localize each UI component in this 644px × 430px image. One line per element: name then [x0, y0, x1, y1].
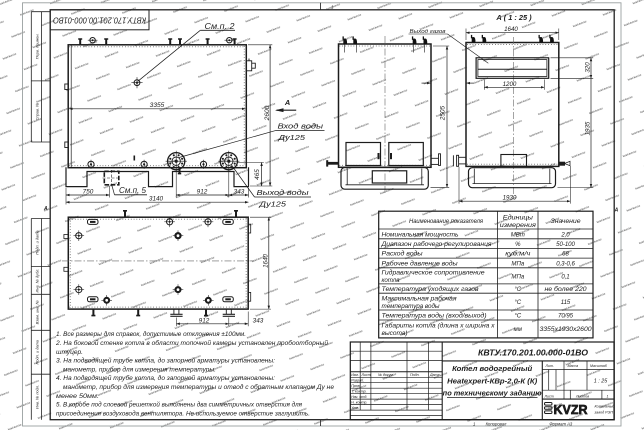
svg-text:Расход воды: Расход воды [382, 251, 424, 258]
svg-text:0,1: 0,1 [561, 273, 569, 280]
svg-text:Подп. и дата: Подп. и дата [34, 230, 39, 255]
svg-text:°С: °С [514, 313, 521, 320]
svg-text:320: 320 [585, 62, 592, 73]
svg-text:Нач. отд.: Нач. отд. [351, 395, 367, 399]
svg-text:Подп.: Подп. [410, 373, 420, 377]
svg-text:Листов: Листов [575, 394, 589, 398]
svg-text:куб.м/ч: куб.м/ч [505, 251, 531, 258]
svg-text:измерения: измерения [500, 222, 537, 229]
svg-text:Температура уходящих газов: Температура уходящих газов [382, 286, 479, 293]
svg-text:менее 50мм.: менее 50мм. [56, 393, 99, 400]
svg-text:Подп. и дата: Подп. и дата [35, 339, 40, 364]
svg-text:Масштаб: Масштаб [590, 364, 608, 368]
svg-text:Т. контр.: Т. контр. [351, 390, 367, 394]
svg-text:См.п. 5: См.п. 5 [119, 186, 147, 195]
svg-text:Инв. № подл.: Инв. № подл. [35, 385, 40, 409]
svg-text:мм: мм [514, 326, 523, 333]
svg-text:А ( 1 : 25 ): А ( 1 : 25 ) [495, 13, 532, 22]
svg-text:Единицы: Единицы [503, 215, 534, 222]
svg-text:750: 750 [83, 188, 94, 195]
svg-text:Перв. примен.: Перв. примен. [35, 33, 40, 59]
svg-text:Температура воды (вход/выход): Температура воды (вход/выход) [382, 313, 487, 320]
svg-text:1: 1 [473, 421, 475, 426]
svg-text:5. В коробе под слоевой решетк: 5. В коробе под слоевой решеткой выполне… [56, 401, 302, 409]
svg-text:манометр, прибор для измерения: манометр, прибор для измерения температу… [63, 383, 334, 391]
svg-text:Диапазон рабочего регулировани: Диапазон рабочего регулирования [380, 241, 492, 248]
svg-text:2. На боковой стенке котла в о: 2. На боковой стенке котла в области топ… [55, 339, 328, 347]
svg-text:Масса: Масса [568, 364, 579, 368]
svg-text:котла: котла [382, 277, 401, 284]
svg-text:Утв.: Утв. [351, 406, 359, 410]
svg-text:Наименование показателя: Наименование показателя [409, 218, 484, 225]
svg-text:°С: °С [514, 286, 521, 293]
svg-text:1 : 25: 1 : 25 [594, 378, 608, 384]
svg-text:высота): высота) [382, 330, 408, 337]
svg-text:1930: 1930 [503, 195, 517, 202]
svg-text:Котельный: Котельный [595, 405, 615, 409]
svg-text:Справ. №: Справ. № [34, 102, 39, 120]
svg-text:3. На подводящей трубе котла,: 3. На подводящей трубе котла, до запорно… [56, 357, 275, 365]
svg-text:температура воды: температура воды [382, 303, 441, 310]
svg-text:КВТУ.170.201.00.000-01ВО: КВТУ.170.201.00.000-01ВО [53, 16, 146, 26]
svg-text:Выход воды: Выход воды [257, 188, 309, 197]
svg-text:2505: 2505 [440, 105, 447, 121]
svg-text:по техническому заданию: по техническому заданию [443, 389, 542, 398]
svg-text:Н. контр.: Н. контр. [351, 401, 367, 405]
svg-text:Габариты котла (длина х ширина: Габариты котла (длина х ширина х [382, 322, 496, 329]
svg-text:Значение: Значение [551, 218, 582, 225]
svg-text:°С: °С [514, 299, 521, 306]
svg-text:Лит.: Лит. [545, 364, 554, 368]
svg-text:1200: 1200 [503, 81, 517, 88]
svg-text:0,3-0,6: 0,3-0,6 [556, 260, 575, 267]
svg-text:МПа: МПа [511, 260, 524, 267]
svg-text:Гидравлическое сопротивление: Гидравлическое сопротивление [382, 270, 486, 277]
svg-text:1640: 1640 [262, 254, 269, 268]
svg-text:№ докум.: № докум. [378, 373, 394, 377]
svg-text:2,0: 2,0 [560, 231, 570, 238]
svg-text:А: А [284, 98, 290, 107]
svg-text:50-100: 50-100 [556, 241, 575, 248]
svg-text:1640: 1640 [504, 26, 518, 33]
svg-text:4. На подводящей трубе котла,: 4. На подводящей трубе котла, до запорно… [56, 374, 275, 382]
svg-text:Вход воды: Вход воды [278, 122, 324, 131]
svg-text:См.п. 2: См.п. 2 [205, 22, 236, 31]
svg-text:Лист: Лист [544, 394, 554, 398]
svg-text:912: 912 [197, 188, 208, 195]
svg-text:3140: 3140 [149, 196, 164, 203]
svg-text:%: % [515, 241, 521, 248]
svg-text:70/95: 70/95 [558, 313, 574, 320]
svg-text:МПа: МПа [511, 273, 524, 280]
svg-text:Лист: Лист [361, 373, 371, 377]
svg-text:Инв. № дубл.: Инв. № дубл. [35, 269, 40, 293]
svg-text:Номинальная мощность: Номинальная мощность [382, 231, 459, 238]
svg-text:Ду125: Ду125 [277, 133, 306, 142]
svg-text:1: 1 [607, 394, 609, 398]
svg-text:МВт: МВт [511, 231, 525, 238]
svg-text:присоединения воздуховода вент: присоединения воздуховода вентилятора. Н… [56, 409, 310, 417]
svg-text:Изм.: Изм. [351, 373, 359, 377]
svg-text:Взам. инв. №: Взам. инв. № [35, 299, 40, 324]
svg-text:Рабочее давление воды: Рабочее давление воды [382, 260, 459, 267]
svg-text:68: 68 [562, 251, 569, 258]
svg-text:Пров.: Пров. [351, 384, 360, 388]
svg-text:343: 343 [253, 317, 264, 324]
svg-text:Формат А3: Формат А3 [549, 421, 573, 426]
svg-text:3355: 3355 [150, 102, 165, 109]
svg-text:А: А [43, 206, 48, 212]
svg-text:3355х1930х2600: 3355х1930х2600 [540, 326, 593, 333]
svg-text:манометр, прибор для измерения: манометр, прибор для измерения температу… [63, 365, 216, 373]
svg-text:Разраб.: Разраб. [351, 379, 364, 383]
svg-text:115: 115 [561, 299, 571, 306]
svg-text:912: 912 [199, 317, 210, 324]
svg-text:343: 343 [234, 188, 245, 195]
svg-text:Котел водогрейный: Котел водогрейный [452, 364, 533, 373]
svg-text:465: 465 [254, 169, 261, 180]
svg-text:Максимальная рабочая: Максимальная рабочая [382, 295, 458, 302]
svg-text:KVZR: KVZR [554, 403, 588, 417]
svg-text:штуцер.: штуцер. [56, 349, 83, 356]
svg-text:завод РЭП: завод РЭП [594, 411, 614, 415]
svg-text:Heatexpert-КВр-2,0-К (К): Heatexpert-КВр-2,0-К (К) [447, 376, 538, 385]
svg-text:Копировал: Копировал [486, 421, 507, 426]
svg-text:Дата: Дата [429, 373, 439, 377]
svg-text:1935: 1935 [585, 121, 592, 135]
svg-text:не более 220: не более 220 [545, 286, 588, 293]
svg-text:Ду125: Ду125 [258, 200, 287, 209]
svg-text:КВТУ.170.201.00.000-01ВО: КВТУ.170.201.00.000-01ВО [478, 348, 589, 357]
svg-text:2600: 2600 [264, 105, 271, 121]
svg-text:1. Все размеры для справок, до: 1. Все размеры для справок, допустимые о… [56, 330, 246, 338]
